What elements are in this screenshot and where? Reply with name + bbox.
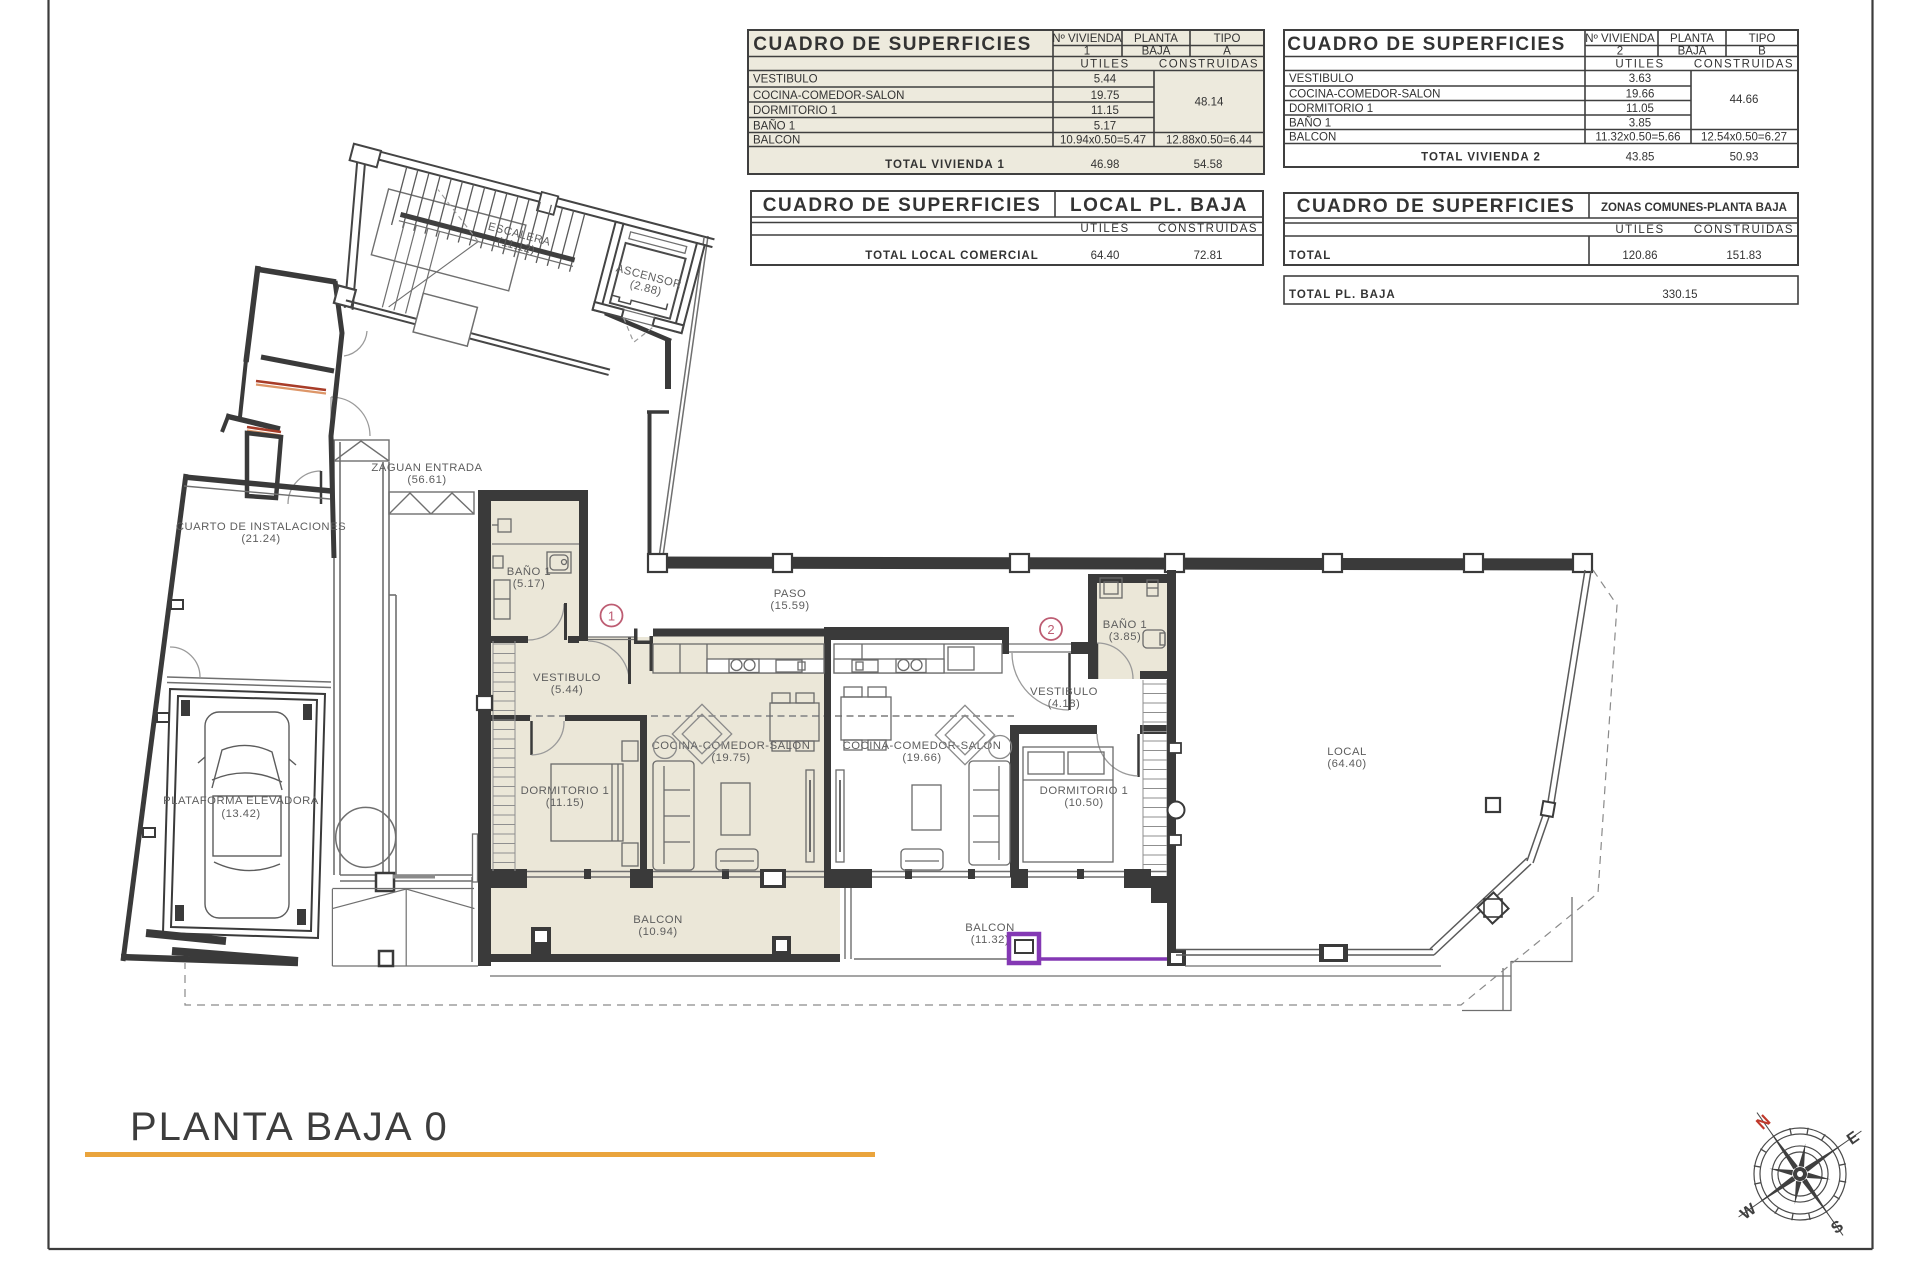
svg-text:BAJA: BAJA	[1678, 46, 1707, 58]
svg-text:43.85: 43.85	[1626, 152, 1655, 164]
svg-text:CONSTRUIDAS: CONSTRUIDAS	[1694, 59, 1794, 71]
svg-text:2: 2	[1617, 46, 1623, 58]
svg-text:BAÑO 1: BAÑO 1	[753, 120, 795, 133]
svg-text:B: B	[1758, 46, 1766, 58]
svg-text:BAÑO 1: BAÑO 1	[1103, 618, 1147, 631]
svg-text:VESTIBULO: VESTIBULO	[753, 74, 818, 86]
svg-text:(4.18): (4.18)	[1048, 698, 1081, 710]
svg-text:(5.44): (5.44)	[551, 684, 584, 696]
svg-text:VESTIBULO: VESTIBULO	[533, 672, 601, 684]
svg-text:ZAGUAN ENTRADA: ZAGUAN ENTRADA	[371, 462, 482, 474]
svg-text:CUADRO DE SUPERFICIES: CUADRO DE SUPERFICIES	[763, 195, 1042, 216]
svg-text:DORMITORIO 1: DORMITORIO 1	[753, 105, 837, 117]
svg-text:(13.42): (13.42)	[221, 808, 260, 820]
svg-text:CUADRO DE SUPERFICIES: CUADRO DE SUPERFICIES	[1287, 34, 1566, 55]
svg-text:BAÑO 1: BAÑO 1	[1289, 117, 1331, 130]
svg-text:A: A	[1223, 46, 1231, 58]
svg-text:BAJA: BAJA	[1142, 46, 1171, 58]
svg-text:12.88x0.50=6.44: 12.88x0.50=6.44	[1166, 135, 1253, 147]
svg-text:VESTIBULO: VESTIBULO	[1030, 686, 1098, 698]
svg-text:CUADRO DE SUPERFICIES: CUADRO DE SUPERFICIES	[753, 34, 1032, 55]
svg-text:(21.24): (21.24)	[241, 533, 280, 545]
svg-text:120.86: 120.86	[1622, 250, 1657, 262]
svg-text:1: 1	[608, 609, 615, 624]
svg-text:72.81: 72.81	[1194, 250, 1223, 262]
svg-text:(19.75): (19.75)	[711, 752, 750, 764]
svg-text:PLANTA: PLANTA	[1670, 33, 1714, 45]
svg-text:UTILES: UTILES	[1080, 59, 1129, 71]
svg-text:10.94x0.50=5.47: 10.94x0.50=5.47	[1060, 135, 1146, 147]
svg-text:Nº VIVIENDA: Nº VIVIENDA	[1585, 33, 1655, 45]
svg-text:(19.66): (19.66)	[902, 752, 941, 764]
svg-text:(10.94): (10.94)	[638, 926, 677, 938]
svg-text:CONSTRUIDAS: CONSTRUIDAS	[1694, 224, 1794, 236]
svg-text:330.15: 330.15	[1662, 289, 1697, 301]
svg-text:TOTAL VIVIENDA 1: TOTAL VIVIENDA 1	[885, 159, 1005, 171]
svg-text:ZONAS COMUNES-PLANTA BAJA: ZONAS COMUNES-PLANTA BAJA	[1601, 202, 1787, 214]
svg-text:44.66: 44.66	[1730, 94, 1759, 106]
svg-text:VESTIBULO: VESTIBULO	[1289, 73, 1354, 85]
svg-text:DORMITORIO 1: DORMITORIO 1	[1040, 785, 1129, 797]
svg-text:(56.61): (56.61)	[407, 474, 446, 486]
svg-text:48.14: 48.14	[1195, 97, 1224, 109]
svg-text:54.58: 54.58	[1194, 159, 1223, 171]
svg-text:DORMITORIO 1: DORMITORIO 1	[521, 785, 610, 797]
svg-text:BAÑO 1: BAÑO 1	[507, 565, 551, 578]
svg-text:(11.32): (11.32)	[971, 934, 1009, 946]
svg-text:CUADRO DE SUPERFICIES: CUADRO DE SUPERFICIES	[1297, 196, 1576, 217]
svg-text:Nº VIVIENDA: Nº VIVIENDA	[1052, 33, 1122, 45]
svg-text:BALCON: BALCON	[633, 914, 682, 926]
svg-text:PLANTA BAJA 0: PLANTA BAJA 0	[130, 1105, 449, 1149]
svg-text:(15.59): (15.59)	[770, 600, 809, 612]
svg-text:PASO: PASO	[774, 588, 807, 600]
svg-text:19.75: 19.75	[1091, 90, 1120, 102]
svg-text:11.05: 11.05	[1626, 103, 1654, 115]
svg-text:1: 1	[1084, 46, 1090, 58]
svg-text:UTILES: UTILES	[1080, 223, 1129, 235]
svg-text:BALCON: BALCON	[753, 135, 800, 147]
svg-text:(5.17): (5.17)	[513, 578, 546, 590]
svg-text:LOCAL PL. BAJA: LOCAL PL. BAJA	[1070, 195, 1248, 216]
svg-text:CONSTRUIDAS: CONSTRUIDAS	[1158, 223, 1258, 235]
svg-text:TIPO: TIPO	[1214, 33, 1241, 45]
svg-text:3.63: 3.63	[1629, 73, 1651, 85]
svg-text:151.83: 151.83	[1726, 250, 1761, 262]
svg-text:2: 2	[1047, 622, 1054, 637]
svg-text:(10.50): (10.50)	[1064, 797, 1103, 809]
svg-text:50.93: 50.93	[1730, 152, 1759, 164]
svg-text:11.32x0.50=5.66: 11.32x0.50=5.66	[1595, 132, 1680, 144]
svg-text:LOCAL: LOCAL	[1327, 746, 1367, 758]
svg-text:5.44: 5.44	[1094, 74, 1117, 86]
svg-text:UTILES: UTILES	[1615, 224, 1664, 236]
svg-text:(64.40): (64.40)	[1327, 758, 1366, 770]
svg-text:CONSTRUIDAS: CONSTRUIDAS	[1159, 59, 1259, 71]
svg-text:TOTAL: TOTAL	[1289, 250, 1331, 262]
svg-text:TOTAL PL. BAJA: TOTAL PL. BAJA	[1289, 289, 1396, 301]
svg-text:PLATAFORMA ELEVADORA: PLATAFORMA ELEVADORA	[163, 795, 319, 807]
svg-text:UTILES: UTILES	[1615, 59, 1664, 71]
svg-text:TIPO: TIPO	[1749, 33, 1776, 45]
svg-text:BALCON: BALCON	[1289, 132, 1336, 144]
svg-text:COCINA-COMEDOR-SALON: COCINA-COMEDOR-SALON	[1289, 89, 1440, 101]
svg-text:12.54x0.50=6.27: 12.54x0.50=6.27	[1701, 132, 1787, 144]
svg-text:11.15: 11.15	[1091, 105, 1119, 117]
svg-text:TOTAL LOCAL COMERCIAL: TOTAL LOCAL COMERCIAL	[865, 250, 1038, 262]
svg-text:TOTAL VIVIENDA 2: TOTAL VIVIENDA 2	[1421, 152, 1541, 164]
svg-text:COCINA-COMEDOR-SALON: COCINA-COMEDOR-SALON	[753, 90, 904, 102]
svg-text:46.98: 46.98	[1091, 159, 1120, 171]
svg-text:3.85: 3.85	[1629, 118, 1651, 130]
svg-text:PLANTA: PLANTA	[1134, 33, 1178, 45]
svg-text:CUARTO DE INSTALACIONES: CUARTO DE INSTALACIONES	[176, 521, 346, 533]
svg-text:64.40: 64.40	[1091, 250, 1120, 262]
svg-text:5.17: 5.17	[1094, 121, 1116, 133]
svg-text:DORMITORIO 1: DORMITORIO 1	[1289, 103, 1373, 115]
svg-text:(3.85): (3.85)	[1109, 631, 1142, 643]
svg-text:19.66: 19.66	[1626, 89, 1655, 101]
